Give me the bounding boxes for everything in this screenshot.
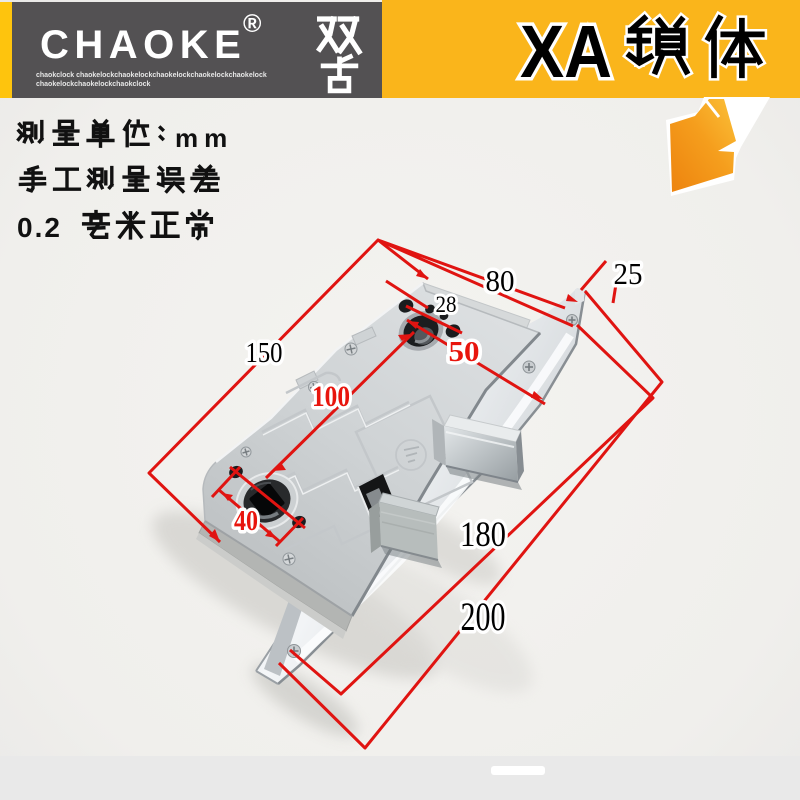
svg-text:chaokclock chaokelockchaokeloc: chaokclock chaokelockchaokelockchaokeloc… bbox=[36, 72, 267, 79]
svg-text:chaokelockchaokelockchaokclock: chaokelockchaokelockchaokclock bbox=[36, 81, 150, 88]
svg-text:80: 80 bbox=[486, 263, 515, 298]
svg-text:40: 40 bbox=[234, 505, 258, 537]
svg-text:150: 150 bbox=[246, 338, 283, 369]
svg-text:XA: XA bbox=[520, 10, 612, 93]
svg-text:mm: mm bbox=[175, 123, 233, 153]
svg-text:CHAOKE: CHAOKE bbox=[40, 23, 246, 67]
svg-text:25: 25 bbox=[614, 256, 643, 291]
svg-text:0.2: 0.2 bbox=[17, 212, 62, 243]
svg-text:180: 180 bbox=[460, 514, 506, 554]
svg-text:28: 28 bbox=[436, 292, 457, 317]
svg-text:50: 50 bbox=[449, 336, 480, 368]
svg-text:100: 100 bbox=[312, 380, 350, 413]
svg-text:®: ® bbox=[243, 10, 262, 38]
svg-text:200: 200 bbox=[461, 594, 506, 639]
